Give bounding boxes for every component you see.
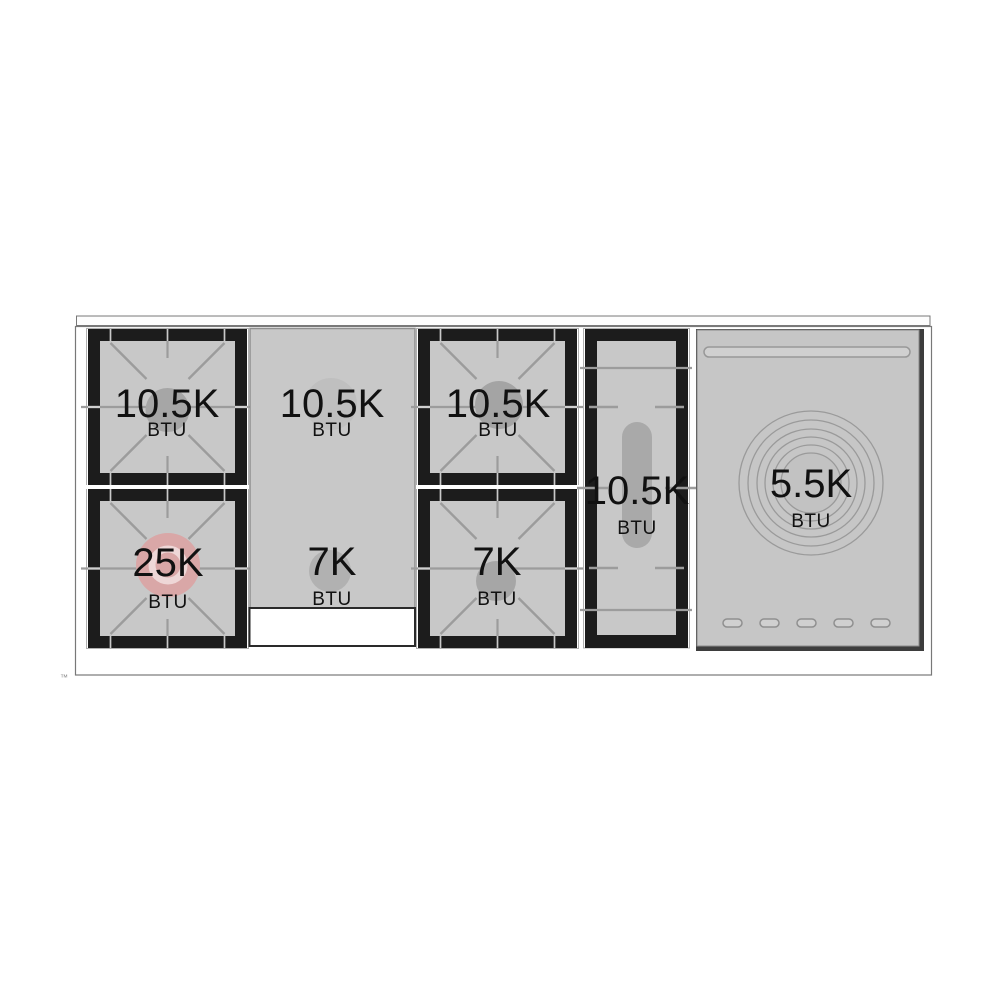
griddle-circle-bottom [309, 550, 351, 592]
oval-burner-element [622, 422, 652, 548]
burner-circle-left-bottom-power [136, 533, 200, 597]
left-burner-module [81, 329, 254, 649]
griddle-zone [250, 329, 416, 647]
panel-top-bar [704, 347, 910, 357]
trademark-mark: ™ [60, 673, 68, 682]
griddle-circle-top [305, 378, 357, 430]
warming-zone-panel [696, 329, 924, 651]
center-burner-module [411, 329, 584, 649]
griddle-tray [250, 608, 416, 646]
burner-circle-left-top [146, 388, 190, 432]
cooktop-graphics [0, 0, 1000, 1000]
burner-circle-center-bottom [476, 561, 516, 601]
oval-burner-module [577, 329, 697, 649]
cooktop-diagram: 10.5K BTU 25K BTU 10.5K BTU 7K BTU 10.5K… [0, 0, 1000, 1000]
burner-circle-center-top [475, 381, 523, 429]
